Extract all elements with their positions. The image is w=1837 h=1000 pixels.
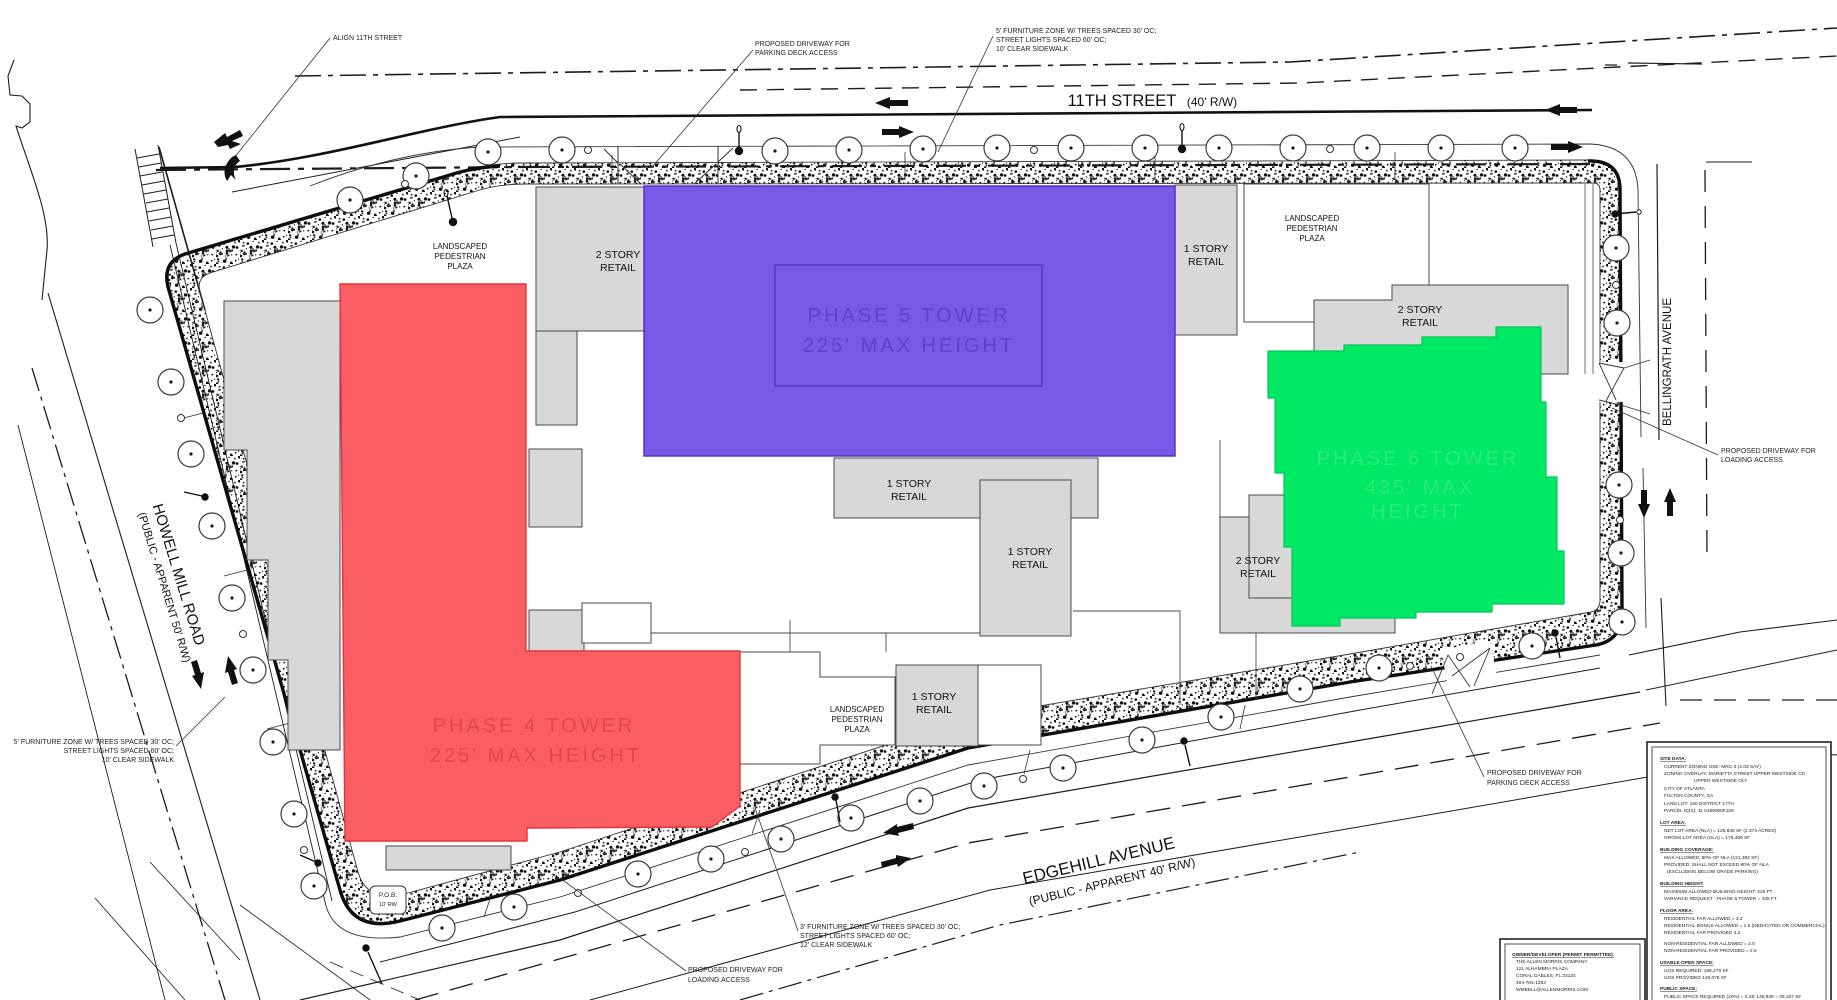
svg-text:BUILDING HEIGHT:: BUILDING HEIGHT: xyxy=(1660,881,1704,887)
svg-text:5' FURNITURE ZONE W/ TREES SPA: 5' FURNITURE ZONE W/ TREES SPACED 30' OC… xyxy=(996,28,1156,35)
svg-text:STREET LIGHTS SPACED 60' OC;: STREET LIGHTS SPACED 60' OC; xyxy=(64,748,174,755)
svg-text:PLAZA: PLAZA xyxy=(844,725,870,734)
svg-text:BELLINGRATH AVENUE: BELLINGRATH AVENUE xyxy=(1662,298,1674,426)
svg-text:1 STORY: 1 STORY xyxy=(912,691,957,703)
svg-text:10' RW: 10' RW xyxy=(379,902,398,908)
svg-text:1 STORY: 1 STORY xyxy=(1008,546,1053,558)
svg-text:11TH STREET: 11TH STREET xyxy=(1068,92,1177,110)
svg-text:LAND LOT: 150 DISTRICT 17: LAND LOT: 150 DISTRICT 17TH xyxy=(1664,801,1735,807)
svg-text:MAXIMUM ALLOWED BUILDING HEIGH: MAXIMUM ALLOWED BUILDING HEIGHT: 225 FT xyxy=(1664,889,1773,895)
svg-text:CITY OF ATLANTA: CITY OF ATLANTA xyxy=(1664,786,1706,792)
svg-text:RETAIL: RETAIL xyxy=(1188,256,1224,268)
svg-text:225' MAX HEIGHT: 225' MAX HEIGHT xyxy=(803,335,1015,357)
svg-text:5' FURNITURE ZONE W/ TREES SPA: 5' FURNITURE ZONE W/ TREES SPACED 30' OC… xyxy=(14,739,174,746)
svg-text:VARIANCE REQUEST - PHASE 6 TOW: VARIANCE REQUEST - PHASE 6 TOWER = 435 F… xyxy=(1664,896,1777,902)
svg-text:STREET LIGHTS SPACED 60' OC;: STREET LIGHTS SPACED 60' OC; xyxy=(800,933,910,940)
svg-text:FLOOR AREA:: FLOOR AREA: xyxy=(1660,908,1694,914)
svg-text:PHASE 6 TOWER: PHASE 6 TOWER xyxy=(1317,448,1520,470)
svg-text:PHASE 5 TOWER: PHASE 5 TOWER xyxy=(808,305,1011,327)
svg-text:UOS REQUIRED: 188,279 SF: UOS REQUIRED: 188,279 SF xyxy=(1664,968,1729,974)
svg-text:LANDSCAPED: LANDSCAPED xyxy=(433,242,487,251)
svg-text:2 STORY: 2 STORY xyxy=(1236,555,1281,567)
svg-text:LANDSCAPED: LANDSCAPED xyxy=(830,705,884,714)
svg-text:PHASE 4 TOWER: PHASE 4 TOWER xyxy=(433,715,636,737)
svg-text:1 STORY: 1 STORY xyxy=(887,478,932,490)
svg-text:NON-RESIDENTIAL FAR PROVIDED =: NON-RESIDENTIAL FAR PROVIDED = 2.6 xyxy=(1664,948,1757,954)
svg-text:UPPER WESTSIDE OLY: UPPER WESTSIDE OLY xyxy=(1694,778,1748,784)
svg-text:121 ALHAMBRA PLAZA: 121 ALHAMBRA PLAZA xyxy=(1516,966,1569,972)
svg-text:CORAL GABLES, FL 33134: CORAL GABLES, FL 33134 xyxy=(1516,973,1576,979)
svg-text:PEDESTRIAN: PEDESTRIAN xyxy=(831,715,882,724)
svg-text:RETAIL: RETAIL xyxy=(1402,317,1438,329)
svg-text:PROVIDED: SHALL NOT EXCEED 80: PROVIDED: SHALL NOT EXCEED 80% OF NLA xyxy=(1664,862,1770,868)
svg-text:NET LOT AREA (NLA) = 125,836 S: NET LOT AREA (NLA) = 125,836 SF (2.374 A… xyxy=(1664,828,1777,834)
svg-text:PEDESTRIAN: PEDESTRIAN xyxy=(434,252,485,261)
svg-text:(EXCLUDING BELOW GRADE PARKING: (EXCLUDING BELOW GRADE PARKING) xyxy=(1667,869,1758,875)
svg-text:10' CLEAR SIDEWALK: 10' CLEAR SIDEWALK xyxy=(102,757,175,764)
svg-text:PUBLIC SPACE REQUIRED (20%) =: PUBLIC SPACE REQUIRED (20%) = 5.25' 145,… xyxy=(1664,994,1801,1000)
svg-text:225' MAX HEIGHT: 225' MAX HEIGHT xyxy=(430,745,642,767)
svg-text:PEDESTRIAN: PEDESTRIAN xyxy=(1286,224,1337,233)
svg-text:WMBELL@ALLENMORRIS.COM: WMBELL@ALLENMORRIS.COM xyxy=(1516,987,1588,993)
svg-text:STREET LIGHTS SPACED 60' OC;: STREET LIGHTS SPACED 60' OC; xyxy=(996,37,1106,44)
svg-text:2 STORY: 2 STORY xyxy=(596,249,641,261)
svg-text:P.O.B.: P.O.B. xyxy=(379,892,398,899)
svg-text:LOADING ACCESS: LOADING ACCESS xyxy=(688,977,750,984)
svg-text:2 STORY: 2 STORY xyxy=(1398,304,1443,316)
svg-text:BUILDING COVERAGE:: BUILDING COVERAGE: xyxy=(1660,847,1714,853)
svg-text:LANDSCAPED: LANDSCAPED xyxy=(1285,214,1339,223)
svg-text:PROPOSED DRIVEWAY FOR: PROPOSED DRIVEWAY FOR xyxy=(1721,448,1816,455)
svg-text:LOADING ACCESS: LOADING ACCESS xyxy=(1721,457,1783,464)
svg-text:RETAIL: RETAIL xyxy=(1240,568,1276,580)
svg-text:RETAIL: RETAIL xyxy=(600,262,636,274)
svg-text:RETAIL: RETAIL xyxy=(1012,559,1048,571)
svg-text:PROPOSED DRIVEWAY FOR: PROPOSED DRIVEWAY FOR xyxy=(1487,770,1582,777)
svg-text:PARCEL ID(S): 11 0150000: PARCEL ID(S): 11 0150000F108 xyxy=(1664,808,1734,814)
svg-text:3' FURNITURE ZONE W/ TREES SPA: 3' FURNITURE ZONE W/ TREES SPACED 30' OC… xyxy=(800,924,960,931)
svg-text:(40' R/W): (40' R/W) xyxy=(1187,95,1237,109)
svg-text:OWNER/DEVELOPER (PERMIT PERMIT: OWNER/DEVELOPER (PERMIT PERMITTEE): xyxy=(1512,952,1615,958)
svg-text:GROSS LOT AREA (GLA) = 175,46: GROSS LOT AREA (GLA) = 175,469 SF xyxy=(1664,835,1750,841)
svg-text:RETAIL: RETAIL xyxy=(916,704,952,716)
svg-text:1 STORY: 1 STORY xyxy=(1184,243,1229,255)
svg-text:435' MAX: 435' MAX xyxy=(1365,477,1475,499)
svg-text:PUBLIC SPACE:: PUBLIC SPACE: xyxy=(1660,986,1697,992)
svg-text:USABLE OPEN SPACE:: USABLE OPEN SPACE: xyxy=(1660,960,1714,966)
svg-text:404-781-1253: 404-781-1253 xyxy=(1516,980,1546,986)
svg-text:FULTON COUNTY, GA: FULTON COUNTY, GA xyxy=(1664,793,1714,799)
svg-text:SITE DATA:: SITE DATA: xyxy=(1660,756,1687,762)
svg-text:PROPOSED DRIVEWAY FOR: PROPOSED DRIVEWAY FOR xyxy=(755,41,850,48)
svg-text:RETAIL: RETAIL xyxy=(891,491,927,503)
svg-text:RESIDENTIAL FAR ALLOWED = 3.2: RESIDENTIAL FAR ALLOWED = 3.2 xyxy=(1664,916,1743,922)
svg-text:HEIGHT: HEIGHT xyxy=(1371,501,1465,523)
svg-text:PLAZA: PLAZA xyxy=(447,262,473,271)
svg-text:PROPOSED DRIVEWAY FOR: PROPOSED DRIVEWAY FOR xyxy=(688,967,783,974)
svg-text:LOT AREA:: LOT AREA: xyxy=(1660,820,1686,826)
svg-text:CURRENT ZONING USE: MRC-3 (2.0: CURRENT ZONING USE: MRC-3 (2.03 SAY) xyxy=(1664,764,1761,770)
svg-text:RESIDENTIAL BONUS ALLOWED = 1.: RESIDENTIAL BONUS ALLOWED = 1.6 (DEDICAT… xyxy=(1664,923,1825,929)
svg-text:RESIDENTIAL FAR PROVIDED 4.2: RESIDENTIAL FAR PROVIDED 4.2 xyxy=(1664,930,1741,936)
svg-text:PLAZA: PLAZA xyxy=(1299,234,1325,243)
svg-text:NON-RESIDENTIAL FAR ALLOWED =: NON-RESIDENTIAL FAR ALLOWED = 2.0 xyxy=(1664,941,1755,947)
svg-text:10' CLEAR SIDEWALK: 10' CLEAR SIDEWALK xyxy=(996,46,1069,53)
svg-text:PARKING DECK ACCESS: PARKING DECK ACCESS xyxy=(1487,780,1570,787)
svg-text:PARKING DECK ACCESS: PARKING DECK ACCESS xyxy=(755,50,838,57)
svg-text:THE ALLEN MORRIS COMPANY: THE ALLEN MORRIS COMPANY xyxy=(1516,959,1588,965)
svg-text:ALIGN 11TH STREET: ALIGN 11TH STREET xyxy=(333,35,403,42)
svg-text:12' CLEAR SIDEWALK: 12' CLEAR SIDEWALK xyxy=(800,942,873,949)
svg-text:MAX ALLOWED: 80% OF NLA (121,: MAX ALLOWED: 80% OF NLA (121,392 SF) xyxy=(1664,855,1759,861)
svg-text:ZONING OVERLAY: MARIETTA STREE: ZONING OVERLAY: MARIETTA STREET UPPER WE… xyxy=(1664,771,1806,777)
svg-text:UOS PROVIDED 148,078 SF: UOS PROVIDED 148,078 SF xyxy=(1664,975,1727,981)
